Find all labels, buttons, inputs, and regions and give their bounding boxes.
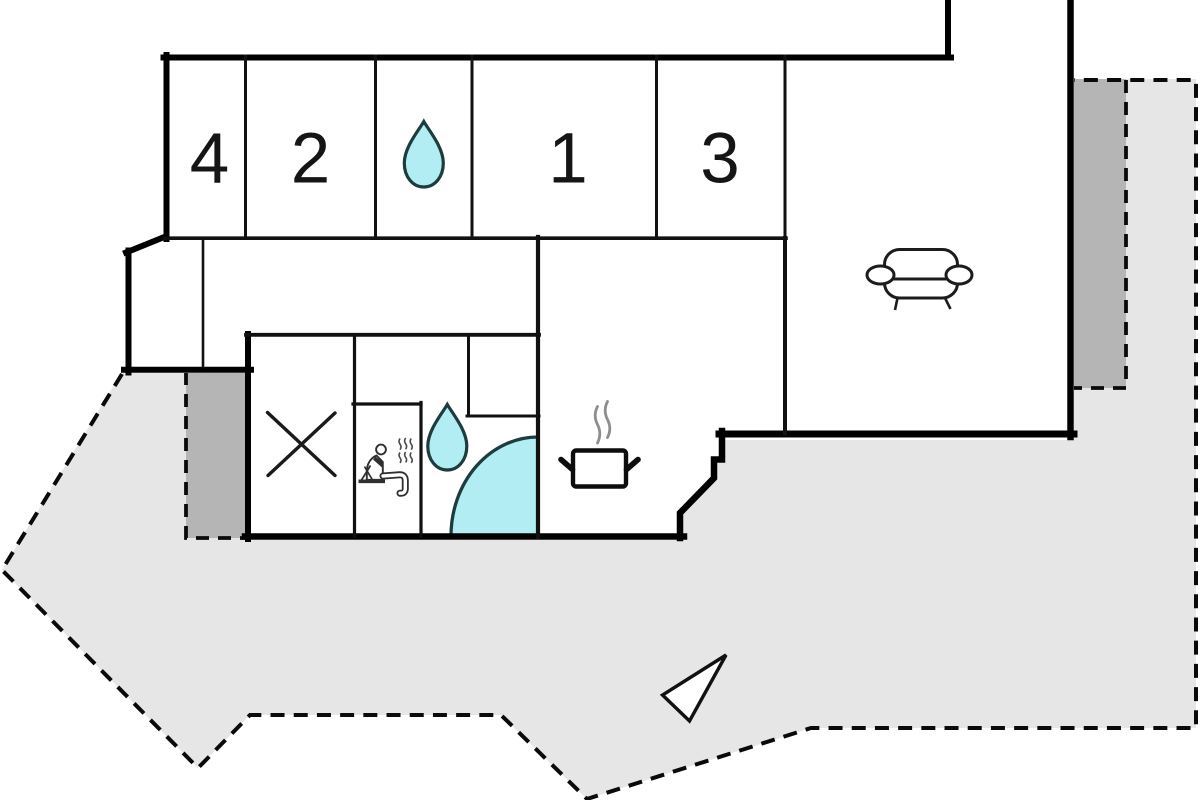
svg-text:4: 4 [190,120,230,199]
svg-text:2: 2 [291,120,331,199]
svg-text:3: 3 [700,120,740,199]
svg-text:1: 1 [548,120,588,199]
